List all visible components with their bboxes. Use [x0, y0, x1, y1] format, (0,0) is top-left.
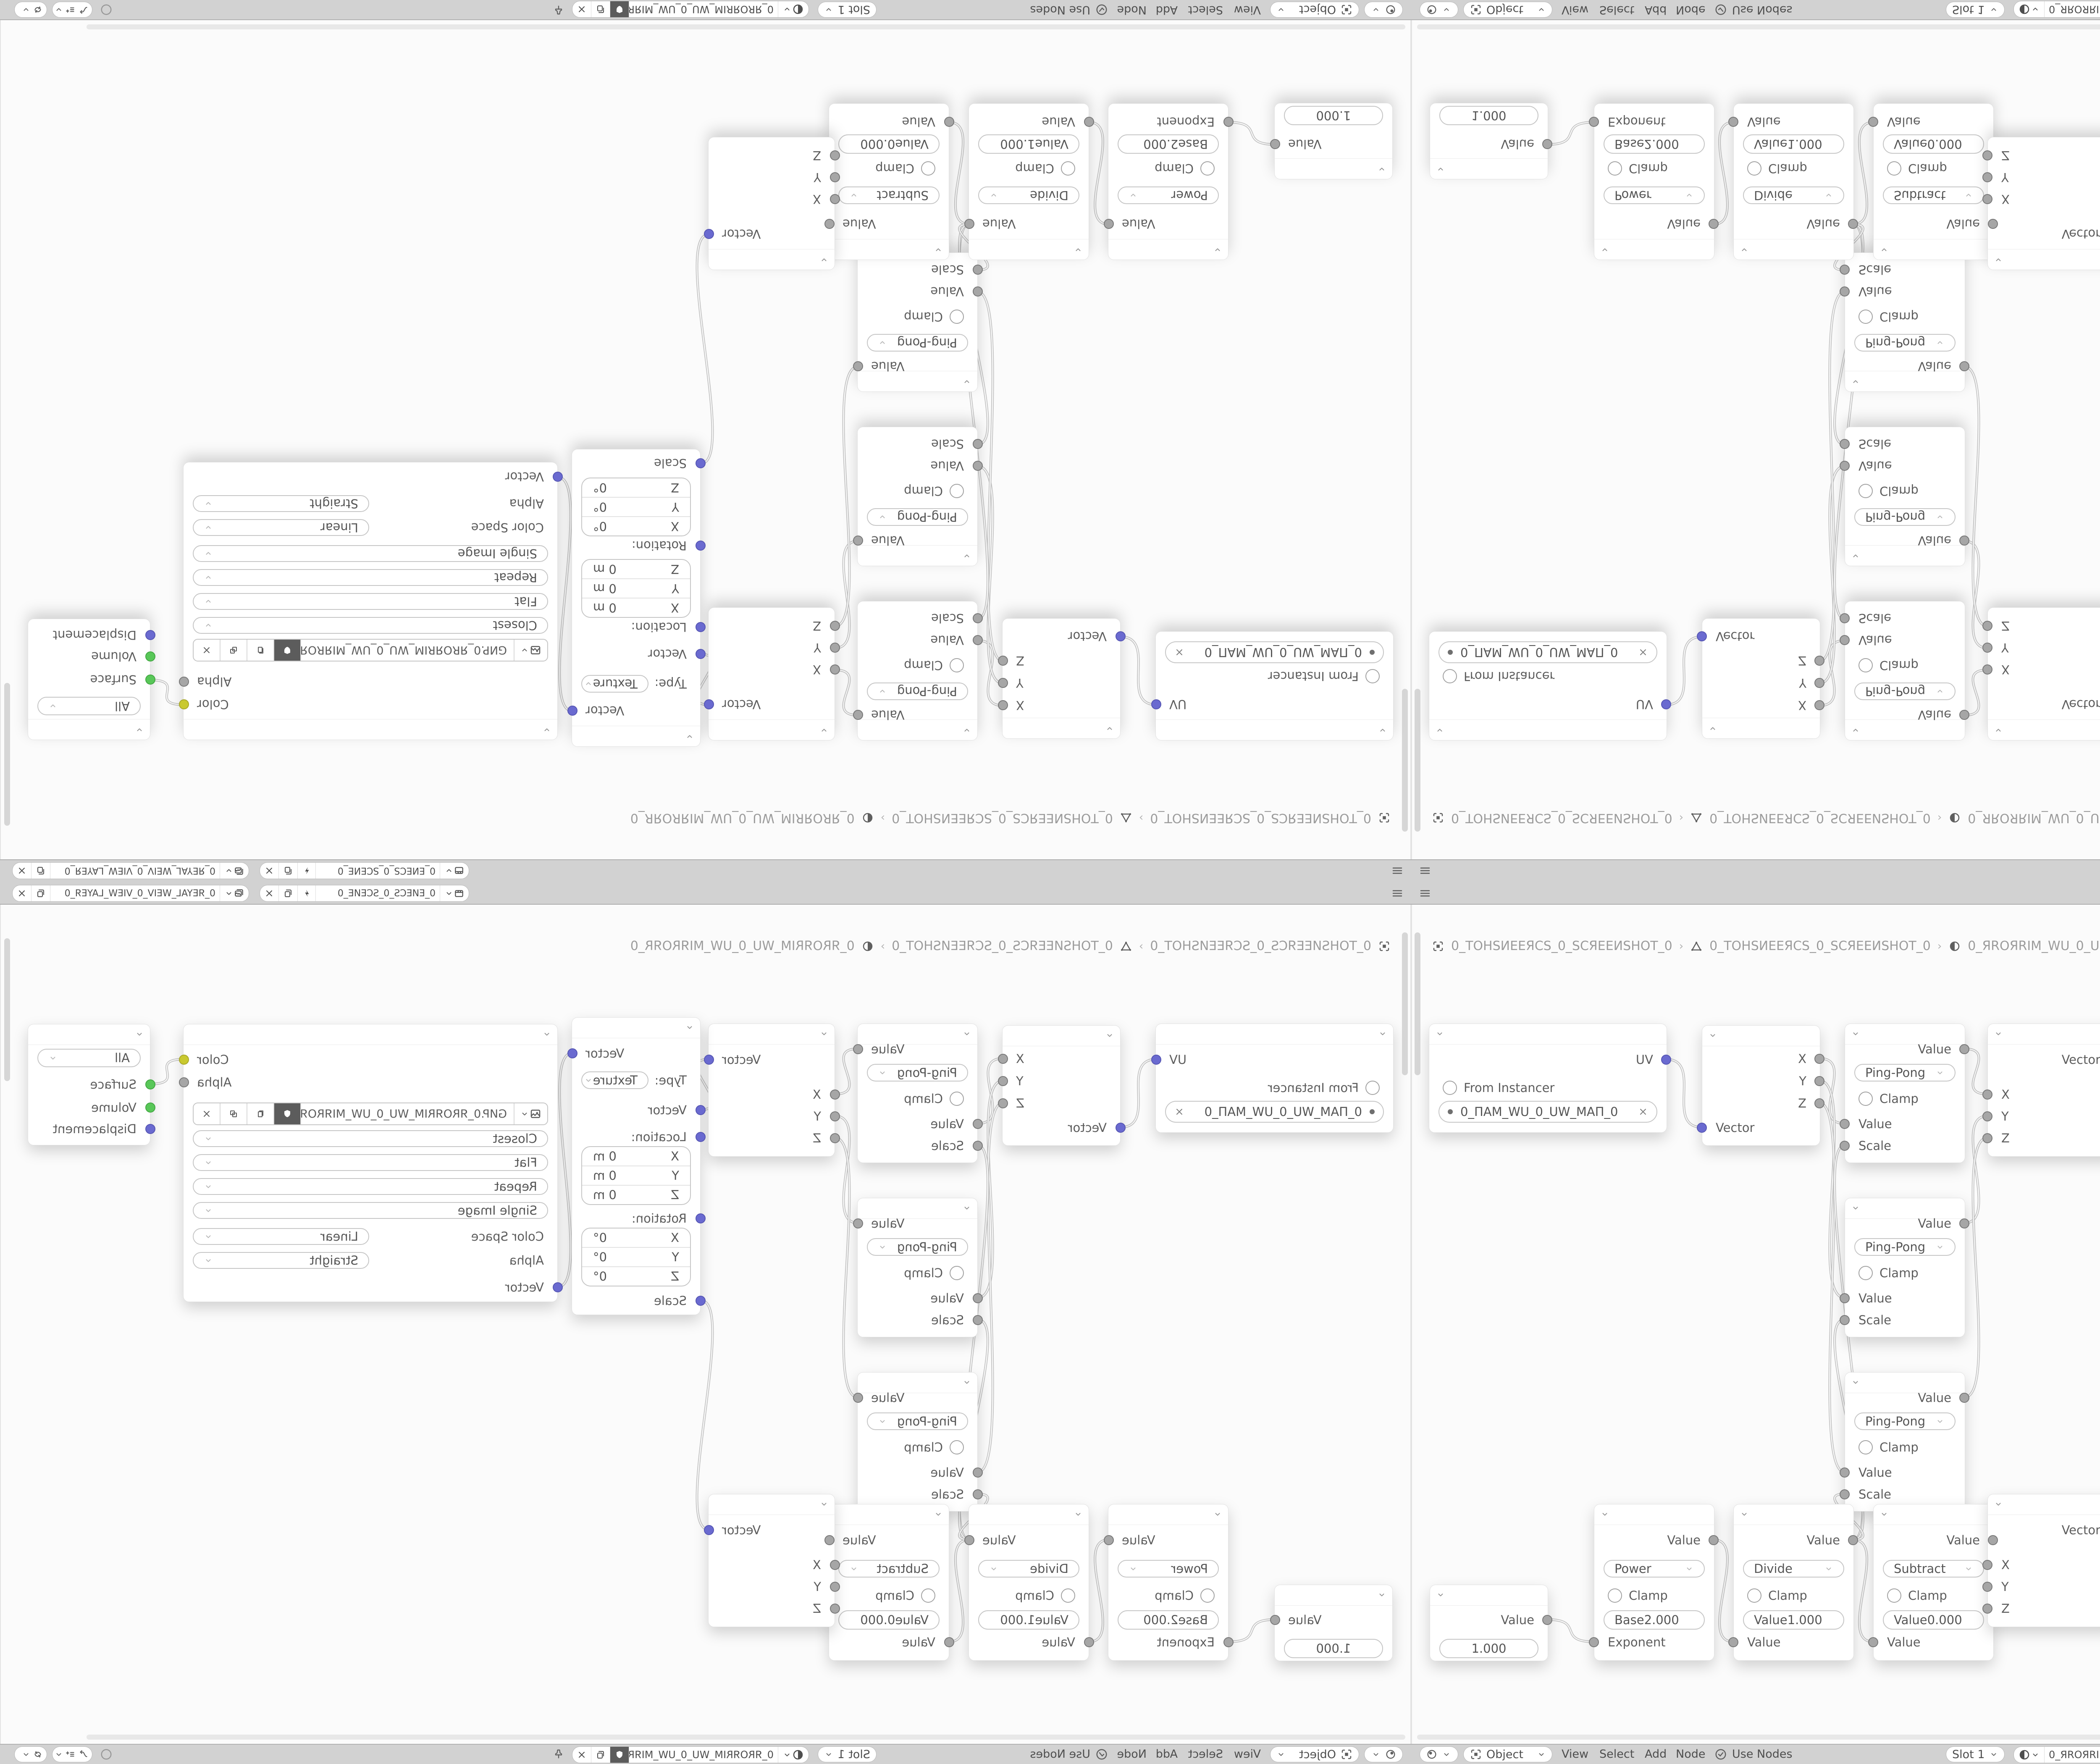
material-icon[interactable] [2014, 1, 2044, 17]
collapse-icon[interactable] [1378, 1029, 1387, 1038]
socket-vector[interactable] [696, 649, 706, 659]
node-math-ping-pong-1[interactable]: ValuePing-PongClampValueScale [857, 1024, 978, 1163]
dropdown-subtract[interactable]: Subtract [1883, 1560, 1984, 1578]
collapse-icon[interactable] [1600, 245, 1609, 255]
close-icon[interactable] [572, 1, 591, 17]
shader-type-dropdown[interactable]: Object [1270, 1746, 1359, 1762]
collapse-icon[interactable] [1851, 726, 1860, 735]
socket-exponent[interactable] [1589, 117, 1599, 127]
breadcrumb-object[interactable]: 0_TOHSИEEЯCS_0_SCЯEEИSHOT_0 [1709, 939, 1931, 953]
socket-uv[interactable] [1151, 699, 1161, 709]
axis-field-z[interactable]: Z0 m [582, 1185, 690, 1204]
socket-value[interactable] [853, 1044, 863, 1054]
socket-y[interactable] [998, 678, 1008, 688]
socket-vector[interactable] [567, 706, 577, 716]
socket-volume[interactable] [145, 1102, 155, 1113]
collapse-icon[interactable] [934, 1509, 943, 1519]
socket-scale[interactable] [1840, 265, 1850, 275]
id-name-field[interactable]: 0_ПAM_WU_0_UW_MAП_0 [1165, 641, 1384, 663]
view-layer-icon[interactable] [220, 885, 249, 901]
collapse-icon[interactable] [1851, 1029, 1860, 1038]
dropdown-straight[interactable]: Straight [193, 495, 369, 512]
checkbox-clamp[interactable]: Clamp [1015, 159, 1075, 178]
socket-x[interactable] [830, 194, 840, 204]
node-combine-xyz-top[interactable]: VectorXYZ [1987, 607, 2100, 740]
socket-z[interactable] [830, 1604, 840, 1614]
id-name-field[interactable]: 0_ПAM_WU_0_UW_MAП_0 [1438, 1101, 1657, 1123]
scrollbar-vertical-left[interactable] [1402, 689, 1408, 832]
socket-value[interactable] [1709, 219, 1719, 229]
socket-value[interactable] [1959, 1393, 1969, 1403]
checkbox-clamp[interactable]: Clamp [1747, 1586, 1807, 1605]
dropdown-subtract[interactable]: Subtract [838, 186, 940, 204]
axis-field-y[interactable]: Y0° [582, 1247, 690, 1266]
checkbox-clamp[interactable]: Clamp [1858, 1089, 1919, 1108]
checkbox-clamp[interactable]: Clamp [904, 1264, 964, 1282]
new-icon[interactable] [298, 863, 316, 879]
socket-value[interactable] [1104, 219, 1114, 229]
scrollbar-vertical-left[interactable] [1402, 932, 1408, 1075]
socket-z[interactable] [1982, 1133, 1992, 1143]
material-name[interactable]: 0_ЯROЯRIM_WU_0_UW_MIЯROЯR_0 [2044, 1747, 2100, 1763]
node-header[interactable] [1594, 239, 1714, 260]
socket-y[interactable] [830, 1111, 840, 1121]
socket-value[interactable] [1959, 1218, 1969, 1228]
socket-x[interactable] [1814, 700, 1824, 710]
collapse-icon[interactable] [962, 726, 971, 735]
socket-vector[interactable] [1116, 631, 1126, 641]
shader-type-dropdown[interactable]: Object [1270, 2, 1359, 18]
node-value[interactable]: Value1.000 [1430, 1585, 1548, 1661]
close-icon[interactable] [1174, 1107, 1184, 1117]
socket-value[interactable] [853, 1218, 863, 1228]
node-uv-map[interactable]: UVFrom Instancer0_ПAM_WU_0_UW_MAП_0 [1429, 1024, 1667, 1133]
socket-value[interactable] [944, 117, 954, 127]
id-name-field[interactable]: 0_ПAM_WU_0_UW_MAП_0 [1165, 1101, 1384, 1123]
socket-x[interactable] [1814, 1054, 1824, 1064]
scene-name[interactable]: 0_EИECS_0_SCEИE_0 [316, 863, 440, 879]
stack-icon[interactable] [220, 1103, 247, 1124]
number-field[interactable]: 1.000 [1284, 106, 1383, 125]
node-math-subtract[interactable]: ValueSubtractClampValue0.000Value [829, 103, 949, 260]
node-header[interactable] [829, 1504, 949, 1525]
collapse-icon[interactable] [819, 1029, 829, 1038]
number-field-value[interactable]: Value1.000 [978, 134, 1079, 154]
breadcrumb-material[interactable]: 0_ЯROЯRIM_WU_0_UW_MIЯROЯR_0 [630, 939, 855, 953]
axis-field-x[interactable]: X0° [582, 517, 690, 535]
node-header[interactable] [1003, 718, 1120, 738]
slot-dropdown[interactable]: Slot 1 [1946, 2, 2005, 18]
breadcrumb-object[interactable]: 0_TOHSИEEЯCS_0_SCЯEEИSHOT_0 [892, 939, 1113, 953]
dropdown-all[interactable]: All [37, 1049, 141, 1067]
dropdown-flat[interactable]: Flat [193, 1154, 548, 1171]
stack-icon[interactable] [220, 640, 247, 661]
scrollbar-horizontal[interactable] [87, 1735, 1405, 1740]
collapse-icon[interactable] [135, 725, 144, 735]
socket-y[interactable] [1982, 172, 1992, 182]
socket-x[interactable] [830, 1089, 840, 1100]
socket-value[interactable] [964, 1535, 974, 1545]
checkbox-clamp[interactable]: Clamp [1608, 159, 1668, 178]
node-math-ping-pong-2[interactable]: ValuePing-PongClampValueScale [1845, 427, 1965, 566]
dropdown-power[interactable]: Power [1118, 1560, 1219, 1578]
socket-z[interactable] [1814, 1098, 1824, 1108]
socket-value[interactable] [1840, 1293, 1850, 1303]
use-nodes-toggle[interactable]: Use Nodes [1714, 1745, 1793, 1764]
number-field-value[interactable]: Value1.000 [978, 1610, 1079, 1630]
shader-type-dropdown[interactable]: Object [1463, 2, 1552, 18]
node-header[interactable] [1988, 719, 2100, 740]
socket-scale[interactable] [973, 1315, 983, 1325]
checkbox-clamp[interactable]: Clamp [1887, 1586, 1947, 1605]
node-canvas[interactable]: UVFrom Instancer0_ПAM_WU_0_UW_MAП_0XYZVe… [1411, 904, 2100, 1745]
dropdown-divide[interactable]: Divide [1743, 1560, 1844, 1578]
node-math-subtract[interactable]: ValueSubtractClampValue0.000Value [1873, 103, 1994, 260]
socket-z[interactable] [830, 621, 840, 631]
dropdown-ping-pong[interactable]: Ping-Pong [867, 682, 968, 700]
node-header[interactable] [1429, 1024, 1667, 1045]
socket-value[interactable] [973, 461, 983, 471]
socket-value[interactable] [824, 219, 835, 229]
menu-view[interactable]: View [1562, 0, 1588, 19]
socket-vector[interactable] [1697, 1123, 1707, 1133]
socket-value[interactable] [1542, 139, 1552, 149]
image-filename[interactable]: GИP.0_ЯROЯRIM_WU_0_UW_MIЯROЯR_0.PNG [301, 640, 514, 661]
close-icon[interactable] [572, 1747, 591, 1763]
socket-uv[interactable] [1661, 1055, 1671, 1065]
socket-y[interactable] [830, 172, 840, 182]
socket-z[interactable] [1982, 1604, 1992, 1614]
number-field[interactable]: 1.000 [1439, 1639, 1538, 1658]
node-header[interactable] [709, 1024, 835, 1045]
node-header[interactable] [1734, 239, 1853, 260]
scene-name[interactable]: 0_EИECS_0_SCEИE_0 [316, 885, 440, 901]
view-layer-selector[interactable]: 0_ЯEYAL_WEIV_0_VIEW_LAYEЯ_0 [12, 885, 249, 902]
socket-value[interactable] [1988, 219, 1998, 229]
socket-value[interactable] [1084, 117, 1094, 127]
dropdown-ping-pong[interactable]: Ping-Pong [867, 1412, 968, 1430]
axis-field-x[interactable]: X0 m [582, 598, 690, 617]
socket-vector[interactable] [704, 229, 714, 239]
checkbox-clamp[interactable]: Clamp [1858, 307, 1919, 326]
socket-value[interactable] [973, 1119, 983, 1129]
node-math-power[interactable]: ValuePowerClampBase2.000Exponent [1594, 103, 1714, 260]
socket-color[interactable] [179, 1055, 189, 1065]
collapse-icon[interactable] [1851, 1203, 1860, 1213]
node-header[interactable] [1429, 719, 1667, 740]
node-mapping[interactable]: VectorType:TextureVectorLocation:X0 mY0 … [572, 1017, 701, 1315]
socket-value[interactable] [1848, 219, 1858, 229]
socket-location-[interactable] [696, 1132, 706, 1142]
menu-add[interactable]: Add [1156, 0, 1178, 19]
dropdown-divide[interactable]: Divide [978, 186, 1079, 204]
socket-value[interactable] [1840, 1467, 1850, 1478]
node-math-divide[interactable]: ValueDivideClampValue1.000Value [1733, 103, 1854, 260]
socket-scale[interactable] [973, 613, 983, 623]
scrollbar-vertical-right[interactable] [4, 938, 10, 1081]
material-selector[interactable]: 0_ЯROЯRIM_WU_0_UW_MIЯROЯR_0 [572, 1746, 809, 1763]
node-header[interactable] [709, 1494, 835, 1515]
node-math-ping-pong-1[interactable]: ValuePing-PongClampValueScale [1845, 1024, 1965, 1163]
checkbox-from-instancer[interactable]: From Instancer [1268, 667, 1380, 685]
slot-dropdown[interactable]: Slot 1 [818, 1746, 877, 1762]
close-icon[interactable] [1638, 1107, 1648, 1117]
socket-value[interactable] [1868, 1637, 1878, 1647]
collapse-icon[interactable] [1994, 1029, 2003, 1038]
scene-selector[interactable]: 0_EИECS_0_SCEИE_0 [260, 885, 469, 902]
pages-icon[interactable] [247, 1103, 274, 1124]
breadcrumb-scene[interactable]: 0_TOHSИEEЯCS_0_SCЯEEИSHOT_0 [1150, 939, 1371, 953]
collapse-icon[interactable] [1994, 726, 2003, 735]
collapse-icon[interactable] [685, 732, 694, 741]
collapse-icon[interactable] [1436, 165, 1445, 174]
socket-y[interactable] [830, 1582, 840, 1592]
menu-node[interactable]: Node [1676, 0, 1705, 19]
node-header[interactable] [1988, 1024, 2100, 1045]
socket-value[interactable] [1840, 461, 1850, 471]
socket-value[interactable] [1542, 1615, 1552, 1625]
duplicate-icon[interactable] [31, 863, 50, 879]
dropdown-texture[interactable]: Texture [581, 675, 648, 693]
socket-x[interactable] [998, 700, 1008, 710]
node-header[interactable] [1156, 719, 1393, 740]
duplicate-icon[interactable] [279, 863, 298, 879]
collapse-icon[interactable] [1600, 1509, 1609, 1519]
collapse-icon[interactable] [962, 1378, 971, 1387]
breadcrumb-scene[interactable]: 0_TOHSИEEЯCS_0_SCЯEEИSHOT_0 [1451, 811, 1672, 825]
node-header[interactable] [184, 719, 557, 740]
dropdown-texture[interactable]: Texture [581, 1071, 648, 1089]
scene-icon[interactable] [440, 863, 469, 879]
node-combine-xyz-bottom[interactable]: VectorXYZ [1987, 1494, 2100, 1627]
dropdown-power[interactable]: Power [1604, 1560, 1705, 1578]
node-header[interactable] [1734, 1504, 1853, 1525]
socket-x[interactable] [998, 1054, 1008, 1064]
node-combine-xyz-top[interactable]: VectorXYZ [1987, 1024, 2100, 1157]
socket-displacement[interactable] [145, 1124, 155, 1134]
socket-x[interactable] [830, 664, 840, 675]
menu-node[interactable]: Node [1676, 1745, 1705, 1764]
node-separate-xyz[interactable]: XYZVector [1002, 618, 1121, 739]
socket-value[interactable] [1959, 710, 1969, 720]
collapse-icon[interactable] [1879, 245, 1889, 255]
collapse-icon[interactable] [1213, 245, 1222, 255]
node-mapping[interactable]: VectorType:TextureVectorLocation:X0 mY0 … [572, 449, 701, 747]
socket-z[interactable] [830, 1133, 840, 1143]
menu-select[interactable]: Select [1188, 1745, 1223, 1764]
node-canvas[interactable]: UVFrom Instancer0_ПAM_WU_0_UW_MAП_0XYZVe… [0, 904, 1411, 1745]
socket-value[interactable] [973, 1293, 983, 1303]
collapse-icon[interactable] [819, 726, 829, 735]
dropdown-ping-pong[interactable]: Ping-Pong [1854, 682, 1956, 700]
falloff-snap-group[interactable] [52, 1746, 92, 1762]
axis-field-y[interactable]: Y0° [582, 498, 690, 517]
node-material-output[interactable]: AllSurfaceVolumeDisplacement [28, 1024, 150, 1145]
scene-selector[interactable]: 0_EИECS_0_SCEИE_0 [260, 862, 469, 879]
menu-node[interactable]: Node [1117, 1745, 1147, 1764]
socket-z[interactable] [830, 150, 840, 160]
socket-y[interactable] [1982, 1582, 1992, 1592]
close-icon[interactable] [13, 885, 31, 901]
socket-value[interactable] [1728, 117, 1738, 127]
socket-z[interactable] [998, 1098, 1008, 1108]
node-math-power[interactable]: ValuePowerClampBase2.000Exponent [1108, 103, 1228, 260]
node-header[interactable] [572, 726, 700, 746]
socket-value[interactable] [1084, 1637, 1094, 1647]
breadcrumb-object[interactable]: 0_TOHSИEEЯCS_0_SCЯEEИSHOT_0 [1709, 811, 1931, 825]
node-header[interactable] [1702, 1026, 1820, 1046]
collapse-icon[interactable] [1436, 1590, 1445, 1599]
socket-vector[interactable] [704, 1055, 714, 1065]
socket-scale[interactable] [973, 265, 983, 275]
socket-vector[interactable] [1116, 1123, 1126, 1133]
node-math-ping-pong-2[interactable]: ValuePing-PongClampValueScale [1845, 1198, 1965, 1337]
node-separate-xyz[interactable]: XYZVector [1702, 1025, 1820, 1146]
node-header[interactable] [28, 1024, 150, 1045]
collapse-icon[interactable] [1435, 726, 1444, 735]
socket-x[interactable] [1982, 1089, 1992, 1100]
collapse-icon[interactable] [1740, 1509, 1749, 1519]
collapse-icon[interactable] [1105, 724, 1114, 733]
node-math-subtract[interactable]: ValueSubtractClampValue0.000Value [829, 1504, 949, 1661]
material-name[interactable]: 0_ЯROЯRIM_WU_0_UW_MIЯROЯR_0 [2044, 1, 2100, 17]
collapse-icon[interactable] [685, 1023, 694, 1032]
breadcrumb-material[interactable]: 0_ЯROЯRIM_WU_0_UW_MIЯROЯR_0 [1968, 811, 2100, 825]
socket-value[interactable] [1959, 361, 1969, 371]
editor-type-button[interactable] [1364, 1746, 1403, 1762]
socket-value[interactable] [853, 535, 863, 546]
node-separate-xyz[interactable]: XYZVector [1002, 1025, 1121, 1146]
image-icon[interactable] [514, 1103, 547, 1124]
checkbox-clamp[interactable]: Clamp [1155, 159, 1215, 178]
checkbox-clamp[interactable]: Clamp [875, 159, 935, 178]
node-header[interactable] [1156, 1024, 1393, 1045]
new-icon[interactable] [298, 885, 316, 901]
node-math-subtract[interactable]: ValueSubtractClampValue0.000Value [1873, 1504, 1994, 1661]
socket-value[interactable] [1840, 286, 1850, 297]
node-header[interactable] [1988, 1494, 2100, 1515]
socket-vector[interactable] [553, 472, 563, 482]
socket-uv[interactable] [1661, 699, 1671, 709]
dropdown-ping-pong[interactable]: Ping-Pong [1854, 508, 1956, 526]
socket-value[interactable] [853, 710, 863, 720]
node-math-ping-pong-3[interactable]: ValuePing-PongClampValueScale [1845, 252, 1965, 392]
dropdown-ping-pong[interactable]: Ping-Pong [867, 334, 968, 352]
breadcrumb-scene[interactable]: 0_TOHSИEEЯCS_0_SCЯEEИSHOT_0 [1451, 939, 1672, 953]
pin-icon[interactable] [553, 1748, 564, 1760]
node-header[interactable] [1003, 1026, 1120, 1046]
checkbox-clamp[interactable]: Clamp [1015, 1586, 1075, 1605]
dropdown-linear[interactable]: Linear [193, 1228, 369, 1245]
number-field-base[interactable]: Base2.000 [1604, 134, 1705, 154]
collapse-icon[interactable] [1074, 1509, 1083, 1519]
image-icon[interactable] [514, 640, 547, 661]
socket-scale[interactable] [973, 439, 983, 449]
socket-z[interactable] [1814, 656, 1824, 666]
socket-scale[interactable] [1840, 613, 1850, 623]
socket-rotation-[interactable] [696, 541, 706, 551]
socket-vector[interactable] [1697, 631, 1707, 641]
view-layer-name[interactable]: 0_ЯEYAL_WEIV_0_VIEW_LAYEЯ_0 [50, 863, 220, 879]
node-header[interactable] [1594, 1504, 1714, 1525]
node-math-divide[interactable]: ValueDivideClampValue1.000Value [969, 103, 1089, 260]
socket-rotation-[interactable] [696, 1213, 706, 1223]
menu-select[interactable]: Select [1188, 0, 1223, 19]
socket-value[interactable] [1709, 1535, 1719, 1545]
dropdown-ping-pong[interactable]: Ping-Pong [1854, 1064, 1956, 1081]
node-canvas[interactable]: UVFrom Instancer0_ПAM_WU_0_UW_MAП_0XYZVe… [1411, 19, 2100, 860]
hamburger-icon[interactable] [1419, 864, 1431, 877]
socket-value[interactable] [973, 286, 983, 297]
checkbox-clamp[interactable]: Clamp [904, 656, 964, 675]
node-header[interactable] [1108, 1504, 1228, 1525]
socket-y[interactable] [1982, 1111, 1992, 1121]
node-header[interactable] [1874, 1504, 1993, 1525]
dropdown-ping-pong[interactable]: Ping-Pong [867, 1238, 968, 1256]
node-math-divide[interactable]: ValueDivideClampValue1.000Value [1733, 1504, 1854, 1661]
socket-y[interactable] [998, 1076, 1008, 1086]
node-header[interactable] [709, 249, 835, 270]
checkbox-clamp[interactable]: Clamp [1747, 159, 1807, 178]
checkbox-clamp[interactable]: Clamp [904, 482, 964, 500]
socket-volume[interactable] [145, 651, 155, 661]
node-math-ping-pong-2[interactable]: ValuePing-PongClampValueScale [857, 1198, 978, 1337]
dropdown-flat[interactable]: Flat [193, 593, 548, 610]
node-header[interactable] [1430, 1585, 1548, 1606]
number-field[interactable]: 1.000 [1284, 1639, 1383, 1658]
pages-icon[interactable] [247, 640, 274, 661]
editor-type-button[interactable] [1420, 1746, 1458, 1762]
use-nodes-toggle[interactable]: Use Nodes [1030, 1745, 1108, 1764]
slot-dropdown[interactable]: Slot 1 [1946, 1746, 2005, 1762]
menu-select[interactable]: Select [1599, 0, 1634, 19]
socket-value[interactable] [853, 361, 863, 371]
falloff-snap-group[interactable] [52, 2, 92, 18]
number-field-value[interactable]: Value0.000 [1883, 134, 1984, 154]
axis-field-z[interactable]: Z0° [582, 478, 690, 498]
close-icon[interactable] [1638, 647, 1648, 657]
socket-y[interactable] [1814, 678, 1824, 688]
dropdown-power[interactable]: Power [1604, 186, 1705, 204]
number-field-value[interactable]: Value1.000 [1743, 134, 1844, 154]
socket-alpha[interactable] [179, 677, 189, 687]
socket-vector[interactable] [696, 1105, 706, 1115]
node-math-power[interactable]: ValuePowerClampBase2.000Exponent [1594, 1504, 1714, 1661]
collapse-icon[interactable] [1879, 1509, 1889, 1519]
node-header[interactable] [1874, 239, 1993, 260]
image-filename[interactable]: GИP.0_ЯROЯRIM_WU_0_UW_MIЯROЯR_0.PNG [301, 1103, 514, 1124]
collapse-icon[interactable] [1708, 724, 1717, 733]
socket-scale[interactable] [1840, 1141, 1850, 1151]
node-header[interactable] [1988, 249, 2100, 270]
number-field-base[interactable]: Base2.000 [1604, 1610, 1705, 1630]
dropdown-repeat[interactable]: Repeat [193, 569, 548, 586]
node-combine-xyz-bottom[interactable]: VectorXYZ [708, 1494, 835, 1627]
socket-scale[interactable] [1840, 1315, 1850, 1325]
fake-user-shield-icon[interactable] [274, 640, 301, 661]
menu-view[interactable]: View [1562, 1745, 1588, 1764]
node-header[interactable] [969, 1504, 1089, 1525]
dropdown-ping-pong[interactable]: Ping-Pong [867, 1064, 968, 1081]
socket-value[interactable] [1270, 1615, 1280, 1625]
socket-x[interactable] [1982, 664, 1992, 675]
socket-uv[interactable] [1151, 1055, 1161, 1065]
menu-view[interactable]: View [1234, 0, 1261, 19]
breadcrumb-object[interactable]: 0_TOHSИEEЯCS_0_SCЯEEИSHOT_0 [892, 811, 1113, 825]
node-material-output[interactable]: AllSurfaceVolumeDisplacement [28, 619, 150, 740]
collapse-icon[interactable] [962, 1029, 971, 1038]
dropdown-ping-pong[interactable]: Ping-Pong [1854, 1238, 1956, 1256]
